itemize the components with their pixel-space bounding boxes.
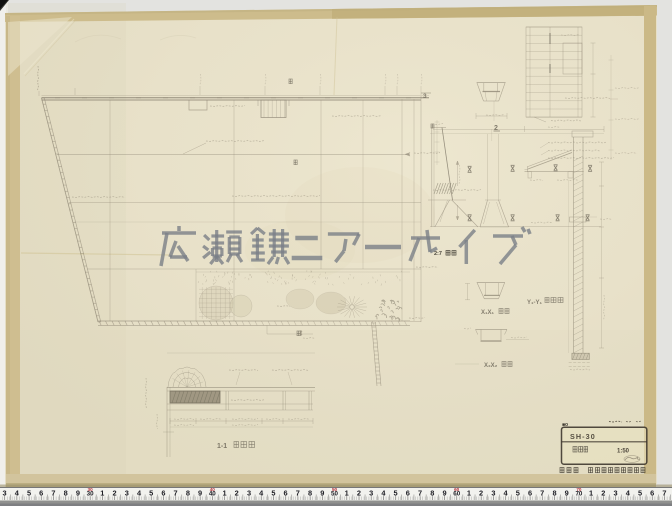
svg-text:Y₁-Y₁: Y₁-Y₁ <box>527 300 542 306</box>
svg-text:X₁X₁: X₁X₁ <box>481 310 494 316</box>
svg-text:6: 6 <box>161 488 165 497</box>
svg-text:7: 7 <box>662 488 666 497</box>
svg-text:8: 8 <box>308 488 312 497</box>
svg-text:X₂X₂: X₂X₂ <box>484 363 498 369</box>
svg-text:7: 7 <box>296 488 300 497</box>
svg-text:2: 2 <box>479 488 483 497</box>
svg-text:3: 3 <box>125 488 129 497</box>
svg-text:5: 5 <box>394 488 398 497</box>
svg-text:7: 7 <box>540 488 544 497</box>
svg-text:9: 9 <box>320 488 324 497</box>
svg-text:5: 5 <box>27 488 31 497</box>
svg-text:5: 5 <box>638 488 642 497</box>
svg-text:6: 6 <box>39 488 43 497</box>
svg-text:9: 9 <box>565 488 569 497</box>
svg-text:8: 8 <box>430 488 434 497</box>
svg-text:1:50: 1:50 <box>617 449 630 455</box>
svg-text:70: 70 <box>576 487 582 492</box>
svg-text:8: 8 <box>186 488 190 497</box>
svg-text:6: 6 <box>528 488 532 497</box>
svg-text:50: 50 <box>332 487 338 492</box>
svg-text:3: 3 <box>614 488 618 497</box>
svg-text:40: 40 <box>210 487 216 492</box>
svg-text:8: 8 <box>64 488 68 497</box>
svg-text:3: 3 <box>369 488 373 497</box>
svg-text:9: 9 <box>198 488 202 497</box>
svg-text:2: 2 <box>601 488 605 497</box>
svg-text:7: 7 <box>418 488 422 497</box>
svg-text:30: 30 <box>88 487 94 492</box>
svg-text:1: 1 <box>222 488 226 497</box>
svg-text:2: 2 <box>112 488 116 497</box>
svg-text:3: 3 <box>247 488 251 497</box>
svg-text:5: 5 <box>271 488 275 497</box>
svg-text:2: 2 <box>357 488 361 497</box>
svg-text:7: 7 <box>51 488 55 497</box>
svg-text:60: 60 <box>454 487 460 492</box>
svg-text:5: 5 <box>516 488 520 497</box>
svg-text:6: 6 <box>284 488 288 497</box>
svg-text:3: 3 <box>3 488 7 497</box>
svg-text:8: 8 <box>552 488 556 497</box>
svg-text:1-1: 1-1 <box>217 443 227 450</box>
svg-text:2: 2 <box>235 488 239 497</box>
svg-text:2:7: 2:7 <box>434 251 442 257</box>
svg-text:1: 1 <box>345 488 349 497</box>
svg-text:7: 7 <box>174 488 178 497</box>
svg-text:3: 3 <box>423 93 427 100</box>
svg-text:■o: ■o <box>562 422 568 428</box>
svg-text:1: 1 <box>589 488 593 497</box>
svg-text:1: 1 <box>100 488 104 497</box>
svg-text:1: 1 <box>467 488 471 497</box>
svg-text:3: 3 <box>491 488 495 497</box>
svg-text:9: 9 <box>76 488 80 497</box>
svg-text:5: 5 <box>149 488 153 497</box>
svg-text:6: 6 <box>650 488 654 497</box>
svg-text:9: 9 <box>442 488 446 497</box>
svg-text:6: 6 <box>406 488 410 497</box>
svg-text:SH-30: SH-30 <box>570 432 596 441</box>
